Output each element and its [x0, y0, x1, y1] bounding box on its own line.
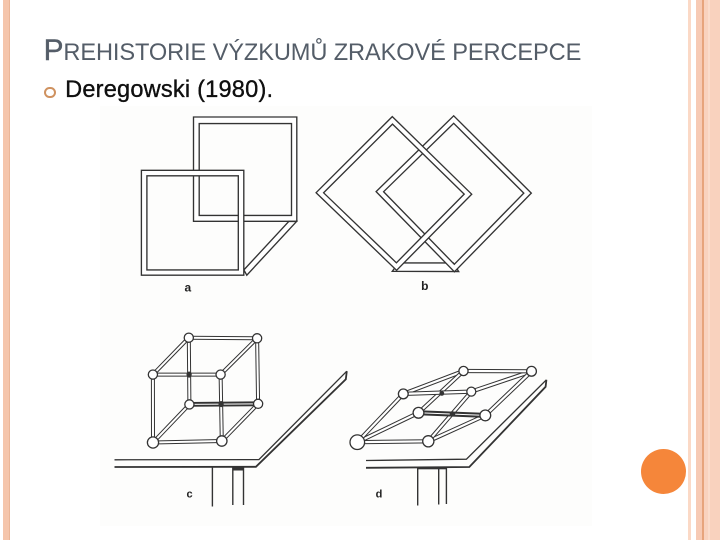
svg-text:d: d — [376, 488, 383, 500]
svg-text:b: b — [421, 279, 428, 293]
svg-text:c: c — [187, 488, 193, 500]
svg-text:a: a — [185, 281, 192, 295]
